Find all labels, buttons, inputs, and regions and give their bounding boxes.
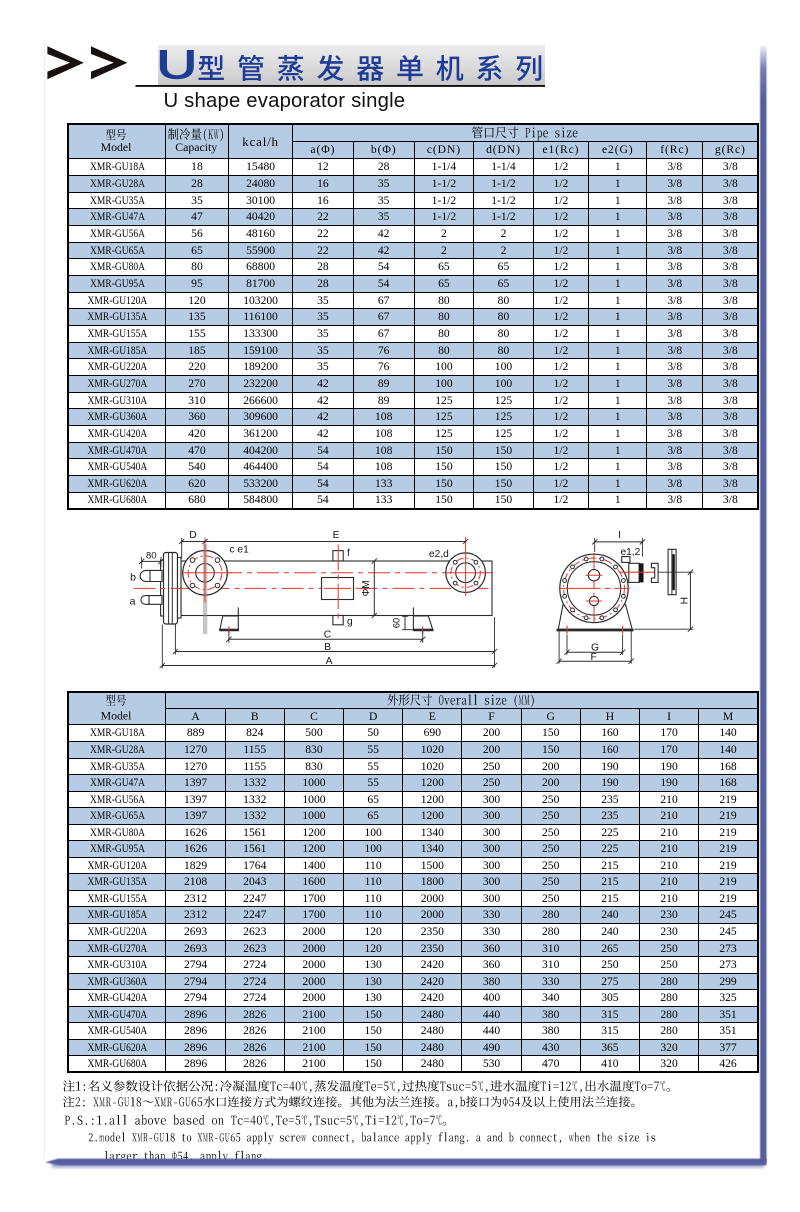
svg-text:g: g bbox=[347, 617, 353, 628]
svg-text:e2,d: e2,d bbox=[429, 549, 449, 560]
svg-text:f: f bbox=[347, 548, 350, 559]
svg-text:a: a bbox=[130, 596, 136, 608]
svg-text:b: b bbox=[130, 572, 136, 584]
svg-text:D: D bbox=[189, 530, 196, 541]
svg-text:G: G bbox=[591, 643, 599, 654]
svg-text:c e1: c e1 bbox=[230, 544, 250, 555]
svg-text:E: E bbox=[333, 530, 340, 541]
svg-text:I: I bbox=[618, 530, 621, 541]
svg-text:e1,2: e1,2 bbox=[621, 547, 641, 558]
svg-text:A: A bbox=[326, 656, 333, 667]
svg-text:H: H bbox=[679, 597, 690, 604]
svg-text:60: 60 bbox=[391, 618, 401, 628]
svg-text:80: 80 bbox=[146, 551, 157, 562]
svg-text:F: F bbox=[591, 652, 597, 663]
svg-text:B: B bbox=[324, 642, 331, 653]
svg-text:ΦM: ΦM bbox=[361, 580, 372, 596]
svg-text:C: C bbox=[324, 629, 332, 640]
